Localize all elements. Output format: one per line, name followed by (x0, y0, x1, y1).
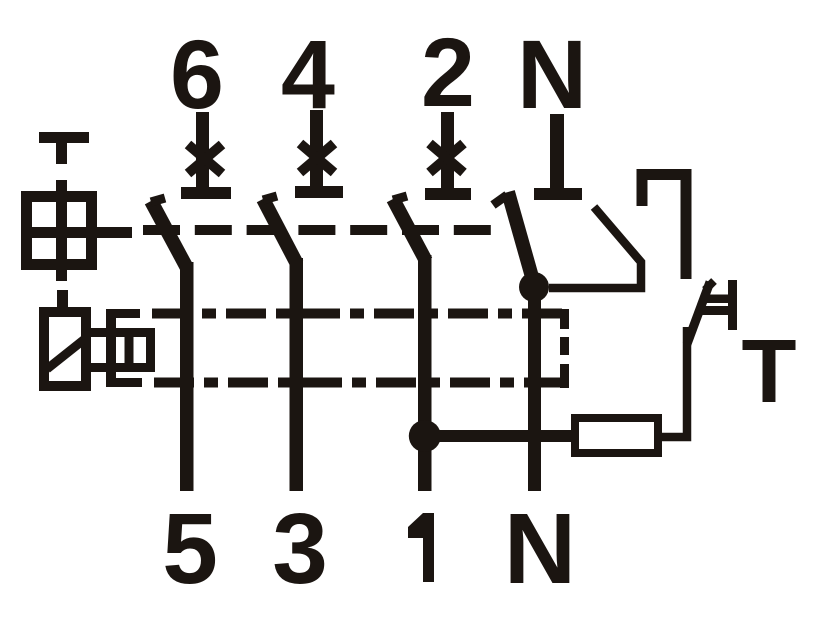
svg-text:N: N (504, 493, 576, 605)
svg-text:N: N (517, 20, 587, 129)
svg-text:4: 4 (281, 20, 335, 129)
svg-text:3: 3 (272, 493, 328, 605)
svg-text:5: 5 (162, 493, 218, 605)
svg-text:T: T (742, 322, 797, 422)
svg-text:2: 2 (421, 18, 475, 127)
